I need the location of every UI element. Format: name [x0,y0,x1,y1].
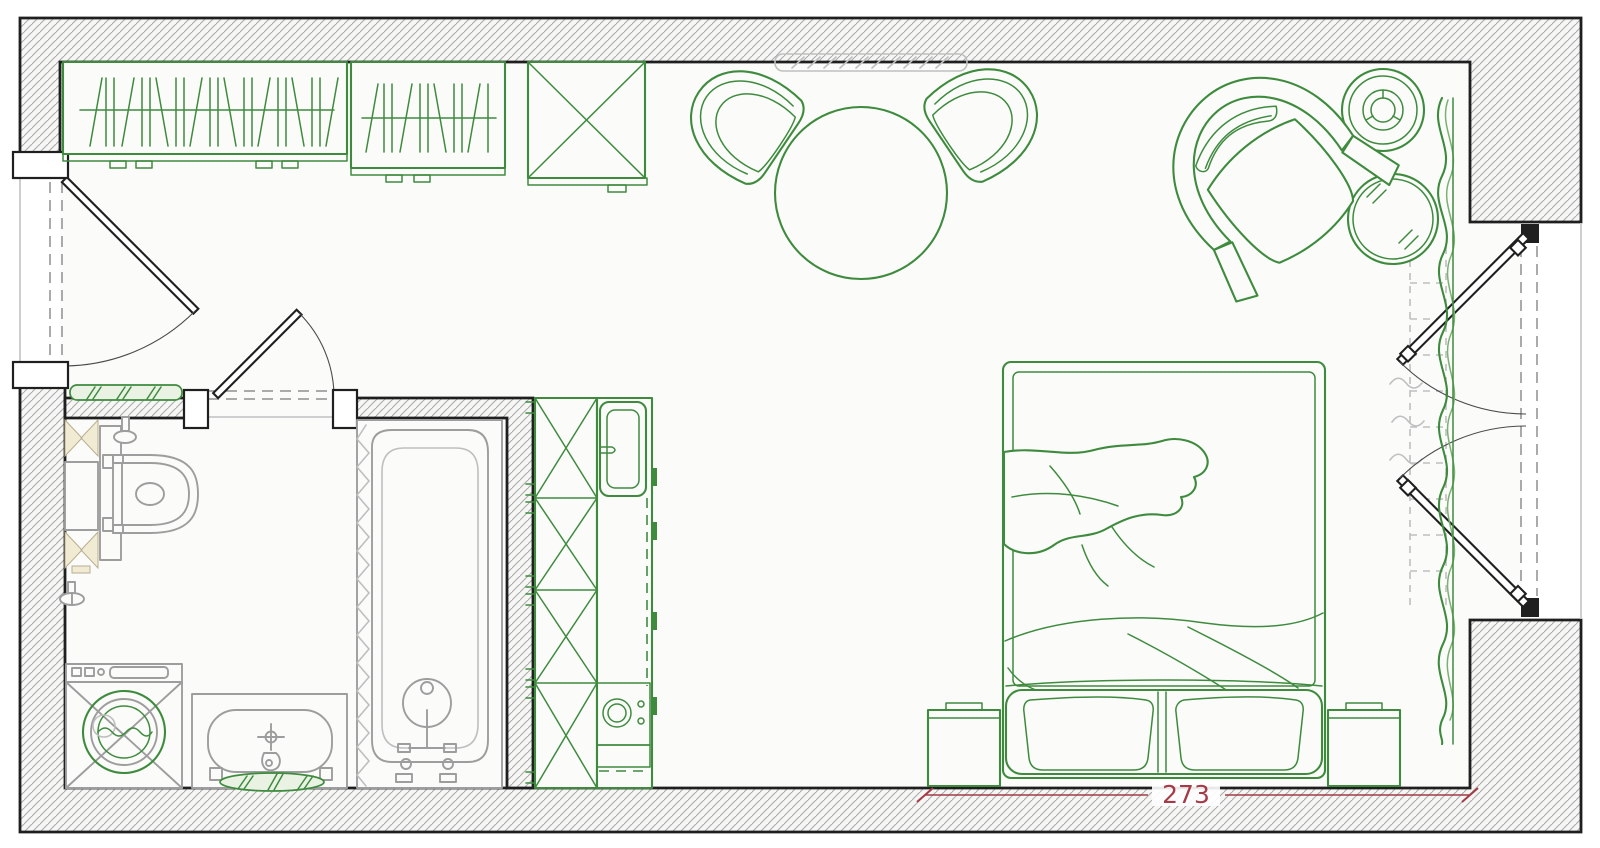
bathroom-wall-left-segment [65,398,196,418]
wardrobe [528,62,647,192]
entrance-jamb-bottom [13,362,68,388]
floor-plan-svg: 273 [0,0,1600,848]
entrance-jamb-top [13,152,68,178]
washing-machine [66,664,182,788]
bed [1003,362,1325,778]
bathroom-jamb-left [184,390,208,428]
nightstand-left [928,703,1000,786]
side-table [1348,174,1438,264]
bath-mat [220,773,324,791]
nightstand-right [1328,703,1400,786]
dimension-label: 273 [1162,780,1210,809]
entrance-mat [70,385,182,400]
pillows [1006,690,1322,774]
window-frame-dashes [1521,246,1537,596]
kitchen-cabinets [526,398,597,788]
kitchen-counter [597,398,657,788]
bookshelf-left [63,62,347,168]
floor-plan: 273 [0,0,1600,848]
bookshelf-right [351,62,505,182]
bathtub [357,420,502,788]
bathroom-jamb-right [333,390,357,428]
dining-table [775,107,947,279]
